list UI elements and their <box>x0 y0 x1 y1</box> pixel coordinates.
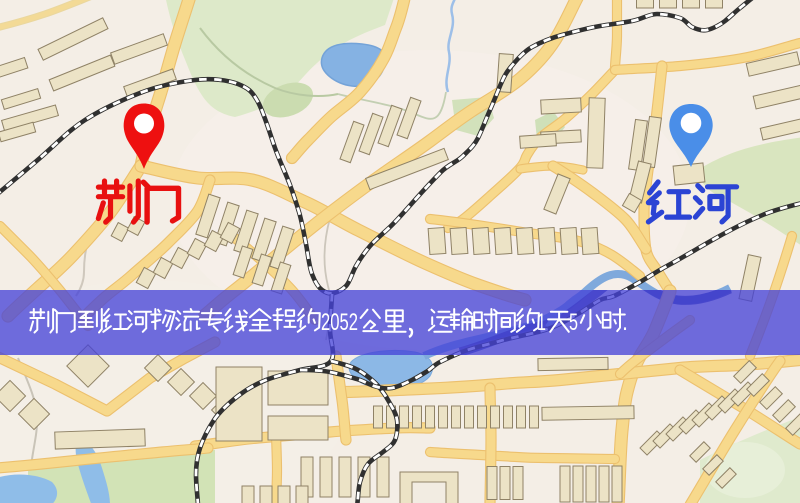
svg-text:2052: 2052 <box>321 309 358 336</box>
svg-text:1: 1 <box>537 309 546 336</box>
svg-text:5: 5 <box>569 309 578 336</box>
svg-text:.: . <box>622 309 628 336</box>
